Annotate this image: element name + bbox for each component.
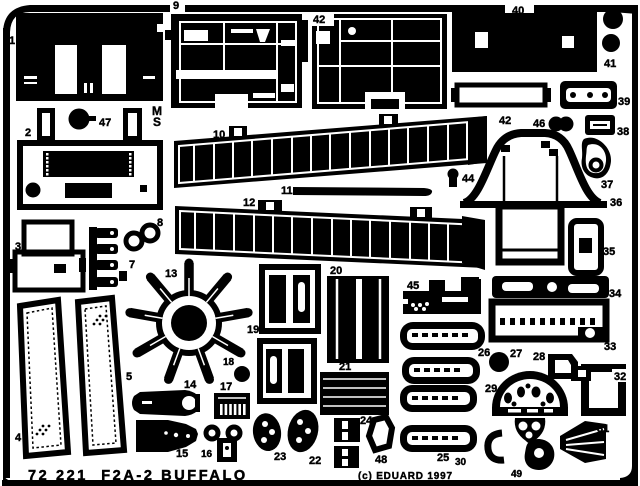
svg-text:48: 48 <box>375 454 387 466</box>
svg-text:46: 46 <box>533 118 545 130</box>
svg-text:40: 40 <box>512 5 524 17</box>
svg-text:35: 35 <box>603 246 615 258</box>
svg-text:24: 24 <box>360 415 373 427</box>
svg-text:17: 17 <box>220 381 232 393</box>
svg-text:29: 29 <box>485 383 497 395</box>
svg-text:16: 16 <box>201 449 213 460</box>
svg-text:26: 26 <box>478 347 490 359</box>
svg-text:25: 25 <box>437 452 449 464</box>
svg-text:13: 13 <box>165 268 177 280</box>
svg-text:20: 20 <box>330 265 342 277</box>
svg-text:42: 42 <box>499 115 511 127</box>
svg-text:18: 18 <box>223 357 235 368</box>
svg-text:23: 23 <box>274 451 286 463</box>
svg-text:45: 45 <box>407 280 419 292</box>
svg-text:5: 5 <box>126 371 132 383</box>
svg-text:14: 14 <box>184 379 197 391</box>
svg-text:19: 19 <box>247 324 259 336</box>
svg-text:31: 31 <box>597 423 609 435</box>
svg-text:(c) EDUARD 1997: (c) EDUARD 1997 <box>358 471 453 482</box>
svg-text:1: 1 <box>9 35 15 47</box>
svg-text:38: 38 <box>617 126 629 138</box>
svg-text:42: 42 <box>313 14 325 26</box>
svg-text:44: 44 <box>462 173 475 185</box>
svg-text:15: 15 <box>176 448 188 460</box>
svg-text:36: 36 <box>610 197 622 209</box>
svg-text:47: 47 <box>99 117 111 129</box>
svg-text:27: 27 <box>510 348 522 360</box>
svg-text:22: 22 <box>309 455 321 467</box>
svg-text:9: 9 <box>173 0 179 12</box>
svg-text:3: 3 <box>15 241 21 253</box>
svg-text:37: 37 <box>601 179 613 191</box>
svg-text:32: 32 <box>614 371 626 383</box>
svg-text:41: 41 <box>604 58 616 70</box>
svg-text:7: 7 <box>129 259 135 271</box>
svg-text:34: 34 <box>609 288 622 300</box>
svg-text:30: 30 <box>455 457 467 468</box>
svg-text:2: 2 <box>25 127 31 139</box>
svg-text:12: 12 <box>243 197 255 209</box>
svg-text:72 221 F2A-2 BUFFALO: 72 221 F2A-2 BUFFALO <box>28 468 248 484</box>
svg-text:4: 4 <box>15 432 22 444</box>
svg-text:10: 10 <box>213 129 225 141</box>
svg-text:28: 28 <box>533 351 545 363</box>
svg-text:49: 49 <box>511 469 523 480</box>
svg-text:S: S <box>153 115 161 129</box>
svg-text:39: 39 <box>618 96 630 108</box>
svg-text:21: 21 <box>339 361 351 373</box>
svg-text:11: 11 <box>281 185 293 197</box>
svg-text:33: 33 <box>604 341 616 353</box>
svg-text:8: 8 <box>157 217 163 229</box>
